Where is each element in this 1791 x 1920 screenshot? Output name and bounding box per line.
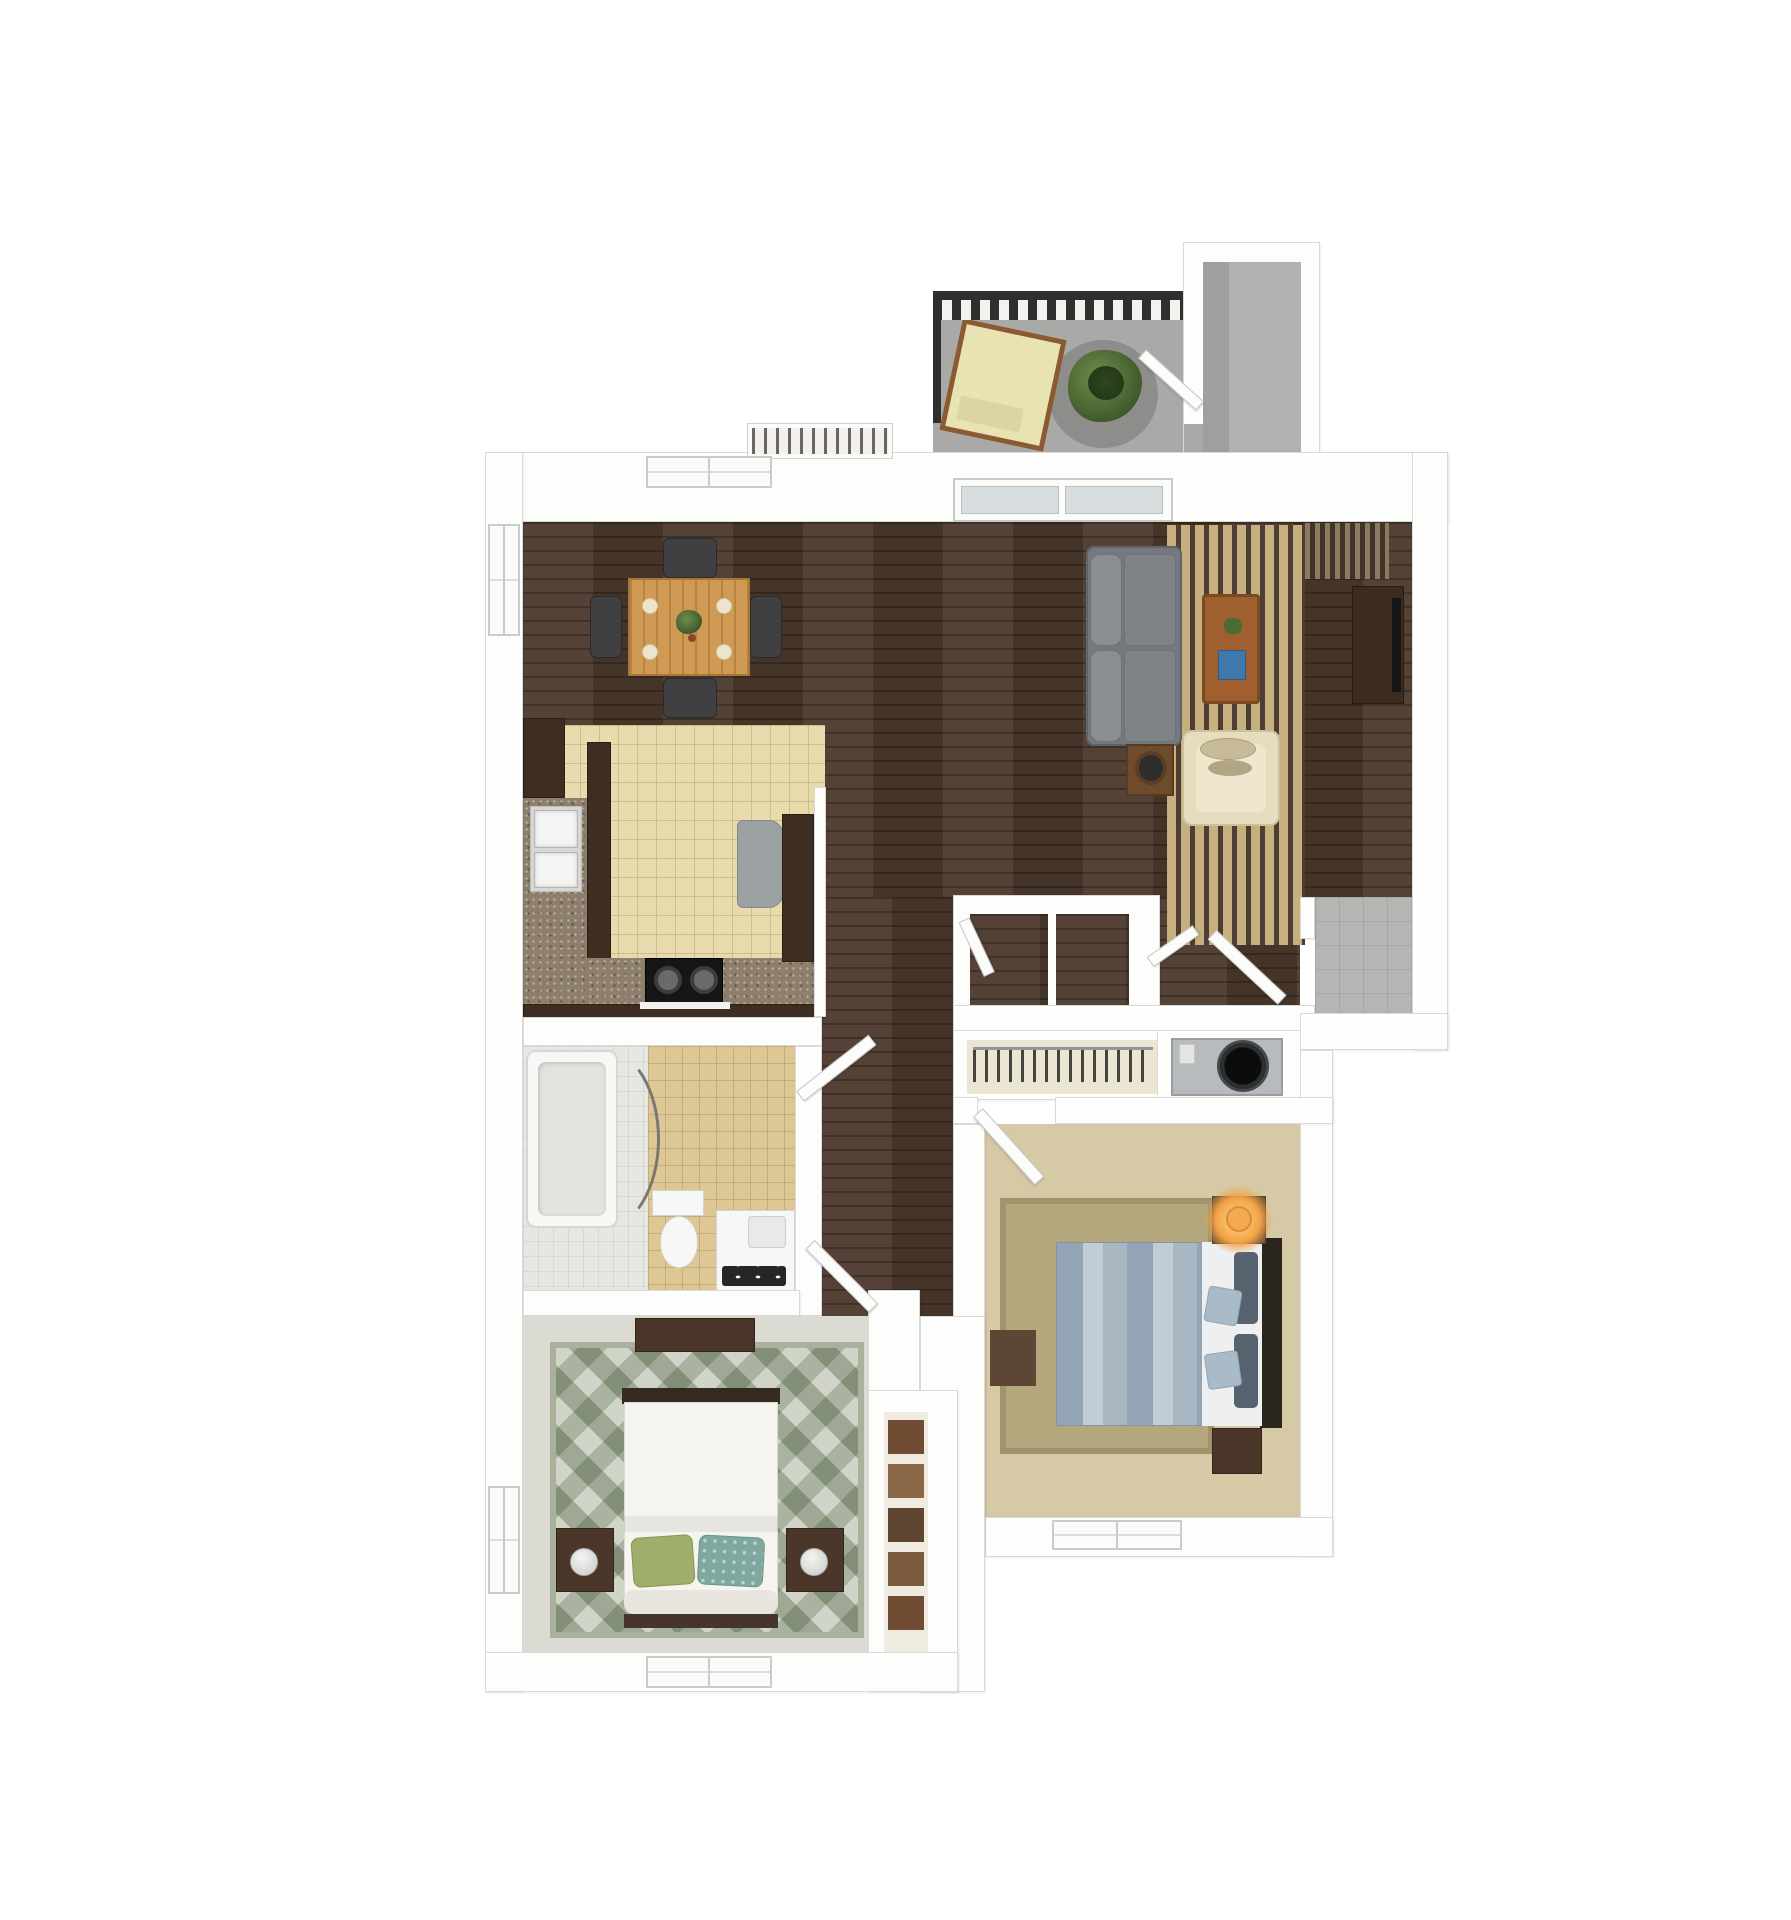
window-bedroom1-left <box>488 1486 520 1594</box>
bedroom2-door-mat <box>990 1330 1036 1386</box>
dining-centerpiece-berry <box>688 634 696 642</box>
armchair-tray-1 <box>1200 738 1256 760</box>
kitchen-cabinet-topleft <box>523 718 565 798</box>
storage-closet-shade <box>1203 262 1229 474</box>
coffee-table-plant <box>1224 618 1242 634</box>
sofa-seat-cushion-1 <box>1124 554 1176 646</box>
shower-curtain-arc <box>548 1048 660 1230</box>
wall-bedroom2-top-left <box>953 1097 978 1124</box>
closet-hangers <box>973 1050 1153 1082</box>
bedroom2-headboard <box>1260 1238 1282 1428</box>
cooktop-front-strip <box>640 1002 730 1009</box>
kitchen-right-cabinet <box>782 814 814 962</box>
closet-shelf-item-2 <box>888 1464 924 1498</box>
armchair-tray-2 <box>1208 760 1252 776</box>
sofa-seat-cushion-2 <box>1124 650 1176 742</box>
dining-plate-4 <box>716 644 732 660</box>
bedroom2-cushion-2 <box>1204 1350 1243 1390</box>
bedroom2-duvet <box>1056 1242 1204 1426</box>
closet-shelf-item-5 <box>888 1596 924 1630</box>
sliding-door-glass-left <box>961 486 1059 514</box>
sliding-door-glass-right <box>1065 486 1163 514</box>
kitchen-right-wall <box>814 787 826 1017</box>
wall-kitchen-bath <box>523 1017 822 1046</box>
bedroom2-bench <box>1212 1428 1262 1474</box>
entry-tile-floor <box>1315 897 1412 1013</box>
dining-chair-right <box>750 596 782 658</box>
balcony-plant-core <box>1088 366 1124 400</box>
apartment-floor-plan <box>0 0 1791 1920</box>
side-table-speaker <box>1135 751 1167 785</box>
balcony-railing-bar <box>933 291 1185 300</box>
balcony-railing-slats <box>933 300 1185 320</box>
washer-door <box>1217 1040 1269 1092</box>
wall-entry-bottom <box>1300 1013 1448 1050</box>
dining-plate-1 <box>642 598 658 614</box>
kitchen-sink-basin-bottom <box>534 852 578 888</box>
coffee-table-book <box>1218 650 1246 680</box>
hall-closet-b-floor <box>1056 914 1129 1006</box>
dining-chair-bottom <box>663 678 717 718</box>
bedroom1-bed-base <box>624 1614 778 1628</box>
closet-shelf-item-3 <box>888 1508 924 1542</box>
vent-window-top <box>748 424 892 458</box>
wall-bedroom2-right <box>1300 1050 1333 1556</box>
bedroom1-lamp-right <box>800 1548 828 1576</box>
balcony-railing-left <box>933 291 941 423</box>
toilet-bowl <box>660 1216 698 1268</box>
coffee-table <box>1202 594 1260 704</box>
dining-chair-left <box>590 596 622 658</box>
bedroom2-lamp <box>1226 1206 1252 1232</box>
window-top-dining <box>646 456 772 488</box>
window-drapes <box>1305 523 1389 579</box>
sofa-back-cushion-2 <box>1090 650 1122 742</box>
kitchen-sink-basin-top <box>534 810 578 848</box>
bedroom2-cushion-1 <box>1203 1285 1243 1326</box>
vanity-faucet-tray <box>722 1266 786 1286</box>
sofa-back-cushion-1 <box>1090 554 1122 646</box>
tv <box>1392 598 1401 692</box>
bedroom1-lamp-left <box>570 1548 598 1576</box>
refrigerator <box>737 820 783 908</box>
kitchen-counter-face <box>587 742 611 978</box>
wall-bedroom2-top-right <box>1055 1097 1333 1124</box>
dining-plate-2 <box>716 598 732 614</box>
cooktop-burner-left <box>654 966 682 994</box>
window-bedroom2 <box>1052 1520 1182 1550</box>
window-bedroom1-bottom <box>646 1656 772 1688</box>
wall-right-upper <box>1412 452 1448 1050</box>
window-left-dining <box>488 524 520 636</box>
wall-bath-bedroom1 <box>523 1290 800 1316</box>
bedroom1-pillow-teal <box>697 1534 766 1587</box>
bedroom1-duvet-fold <box>624 1516 778 1532</box>
vanity-sink <box>748 1216 786 1248</box>
bedroom1-blanket-roll <box>624 1590 778 1614</box>
closet-shelf-item-4 <box>888 1552 924 1586</box>
dining-chair-top <box>663 538 717 578</box>
closet-shelf-item-1 <box>888 1420 924 1454</box>
wall-mid-band <box>953 1005 1315 1032</box>
entry-wall-stub <box>1300 897 1315 939</box>
hallway-hardwood <box>822 897 957 1316</box>
bedroom1-dresser <box>635 1318 755 1352</box>
detergent-bottle <box>1179 1044 1195 1064</box>
dining-plate-3 <box>642 644 658 660</box>
toilet-tank <box>652 1190 704 1216</box>
cooktop-burner-right <box>690 966 718 994</box>
bedroom1-pillow-green <box>630 1534 695 1588</box>
